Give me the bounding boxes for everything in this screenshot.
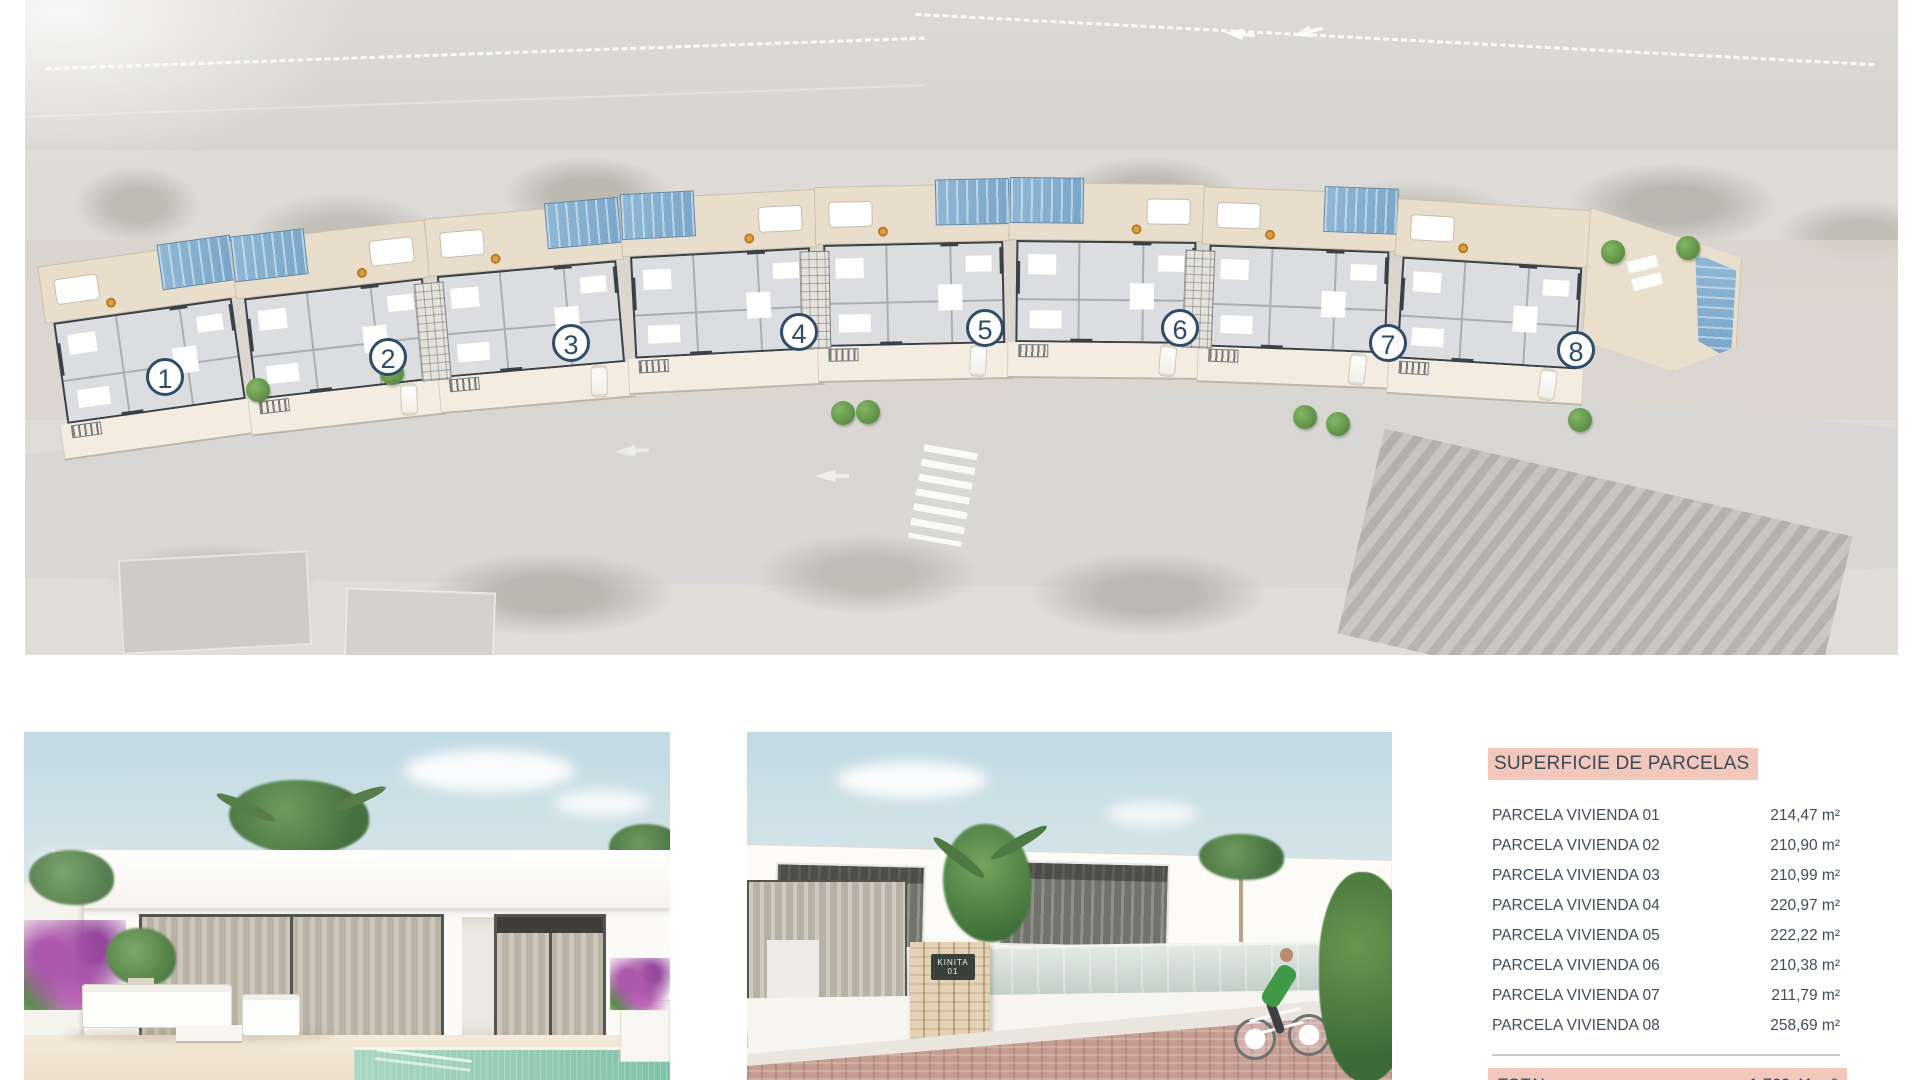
tree-icon — [1676, 236, 1700, 260]
pool — [620, 190, 696, 240]
parcel-area-value: 222,22 m² — [1770, 927, 1840, 945]
parcel-label: PARCELA VIVIENDA 06 — [1492, 957, 1660, 975]
bicycle-wheel — [1234, 1018, 1276, 1060]
table-total-row: TOTAL 1.760,41 m² — [1488, 1068, 1847, 1080]
pool — [230, 228, 309, 282]
stairs — [1018, 344, 1048, 357]
table-row: PARCELA VIVIENDA 06210,38 m² — [1492, 951, 1840, 981]
sign-number: 01 — [931, 967, 975, 976]
car — [969, 344, 988, 377]
pool — [1323, 186, 1399, 235]
terrace — [619, 189, 818, 257]
car — [590, 365, 608, 397]
stairs — [449, 377, 480, 393]
house-number-5: 5 — [966, 309, 1004, 347]
brochure-page: 12345678 — [0, 0, 1920, 1080]
dining-table — [759, 206, 802, 232]
parasol — [1265, 230, 1275, 240]
parasol — [490, 253, 501, 264]
parasol — [1131, 224, 1141, 234]
house-plan-8 — [1388, 198, 1592, 405]
outdoor-armchair — [242, 994, 300, 1036]
green-tree — [1319, 872, 1392, 1080]
table-row: PARCELA VIVIENDA 04220,97 m² — [1492, 891, 1840, 921]
terrace — [1202, 186, 1400, 251]
table-separator — [1492, 1054, 1840, 1056]
parcel-area-value: 210,99 m² — [1770, 867, 1840, 885]
driveway — [1007, 342, 1203, 380]
tree-icon — [1568, 408, 1592, 432]
pool — [156, 235, 236, 291]
tree-icon — [246, 378, 270, 402]
stairs — [71, 421, 103, 438]
dining-table — [1217, 203, 1260, 229]
dining-table — [829, 202, 871, 227]
cloud — [404, 750, 574, 792]
pool — [1010, 177, 1084, 224]
render-villa-entrance: KINITA 01 — [747, 732, 1392, 1080]
house-plan-4 — [621, 189, 823, 395]
bougainvillea — [610, 958, 670, 1010]
house-plan-3 — [426, 202, 634, 414]
parcel-area-value: 211,79 m² — [1771, 987, 1840, 1005]
dining-table — [1148, 199, 1190, 223]
villa-sign: KINITA 01 — [931, 954, 975, 980]
house-plan-6 — [1009, 182, 1203, 380]
house-number-1: 1 — [146, 358, 184, 396]
parcel-label: PARCELA VIVIENDA 07 — [1492, 987, 1660, 1005]
floorplan — [1206, 245, 1390, 354]
dining-table — [369, 237, 413, 266]
house-number-6: 6 — [1161, 309, 1199, 347]
house-number-7: 7 — [1369, 324, 1407, 362]
parcel-label: PARCELA VIVIENDA 04 — [1492, 897, 1660, 915]
house-number-8: 8 — [1557, 331, 1595, 369]
parasol — [744, 233, 755, 244]
car — [1158, 344, 1178, 377]
parasol — [356, 267, 367, 278]
dining-table — [1411, 215, 1454, 242]
table-title: SUPERFICIE DE PARCELAS — [1488, 748, 1758, 780]
stairs — [828, 348, 858, 362]
cyclist-head — [1280, 948, 1293, 962]
house-number-2: 2 — [369, 338, 407, 376]
end-terrace — [1580, 208, 1744, 375]
table-row: PARCELA VIVIENDA 08258,69 m² — [1492, 1011, 1840, 1041]
coffee-table — [176, 1025, 242, 1041]
parasol — [1458, 243, 1469, 254]
parasol — [105, 297, 116, 308]
parcel-label: PARCELA VIVIENDA 02 — [1492, 837, 1660, 855]
parcel-area-value: 220,97 m² — [1770, 897, 1840, 915]
dining-table — [440, 230, 484, 258]
tree-icon — [1601, 240, 1625, 264]
cloud — [837, 762, 987, 798]
parcel-label: PARCELA VIVIENDA 03 — [1492, 867, 1660, 885]
pool — [935, 178, 1010, 226]
car — [400, 383, 418, 416]
parcel-area-value: 214,47 m² — [1770, 807, 1840, 825]
outdoor-sofa — [82, 984, 232, 1028]
table-row: PARCELA VIVIENDA 05222,22 m² — [1492, 921, 1840, 951]
table-row: PARCELA VIVIENDA 03210,99 m² — [1492, 861, 1840, 891]
stairs — [1208, 349, 1238, 363]
floorplan — [437, 260, 625, 377]
parcel-area-table: SUPERFICIE DE PARCELAS PARCELA VIVIENDA … — [1492, 748, 1840, 1080]
sun-lounger — [1627, 255, 1659, 274]
stairs — [638, 359, 669, 374]
stairs — [1398, 361, 1429, 376]
house-plan-5 — [816, 183, 1012, 383]
parasol — [878, 227, 888, 237]
tree-icon — [831, 401, 855, 425]
glass-sliding-door — [494, 914, 606, 1039]
parcel-label: PARCELA VIVIENDA 05 — [1492, 927, 1660, 945]
house-number-4: 4 — [780, 313, 818, 351]
parcel-area-value: 210,90 m² — [1770, 837, 1840, 855]
tree-icon — [1326, 412, 1350, 436]
sign-name: KINITA — [931, 958, 975, 967]
terrace — [814, 183, 1011, 245]
car — [1347, 353, 1367, 387]
table-rows: PARCELA VIVIENDA 01214,47 m²PARCELA VIVI… — [1492, 801, 1840, 1041]
end-pool — [1689, 253, 1737, 359]
house-plan-2 — [232, 220, 445, 436]
dining-table — [54, 275, 99, 305]
table-row: PARCELA VIVIENDA 02210,90 m² — [1492, 831, 1840, 861]
driveway — [1196, 346, 1393, 389]
parcel-label: PARCELA VIVIENDA 08 — [1492, 1017, 1660, 1035]
house-number-3: 3 — [552, 324, 590, 362]
terrace — [1008, 182, 1205, 242]
flat-roof-fascia — [52, 850, 670, 908]
tree-icon — [856, 400, 880, 424]
render-villa-pool — [24, 732, 670, 1080]
house-plan-1 — [39, 240, 256, 461]
parcel-area-value: 258,69 m² — [1770, 1017, 1840, 1035]
table-row: PARCELA VIVIENDA 01214,47 m² — [1492, 801, 1840, 831]
total-value: 1.760,41 m² — [1749, 1076, 1837, 1080]
cloud — [1107, 802, 1197, 826]
tree-icon — [1293, 405, 1317, 429]
floorplan — [1396, 257, 1582, 370]
driveway — [817, 343, 1014, 383]
cloud — [554, 790, 649, 816]
table-row: PARCELA VIVIENDA 07211,79 m² — [1492, 981, 1840, 1011]
car — [1537, 368, 1558, 402]
pool — [544, 197, 622, 249]
house-plan-7 — [1198, 186, 1397, 389]
floorplan — [244, 278, 434, 400]
parcel-label: PARCELA VIVIENDA 01 — [1492, 807, 1660, 825]
parcel-area-value: 210,38 m² — [1770, 957, 1840, 975]
total-label: TOTAL — [1498, 1076, 1550, 1080]
